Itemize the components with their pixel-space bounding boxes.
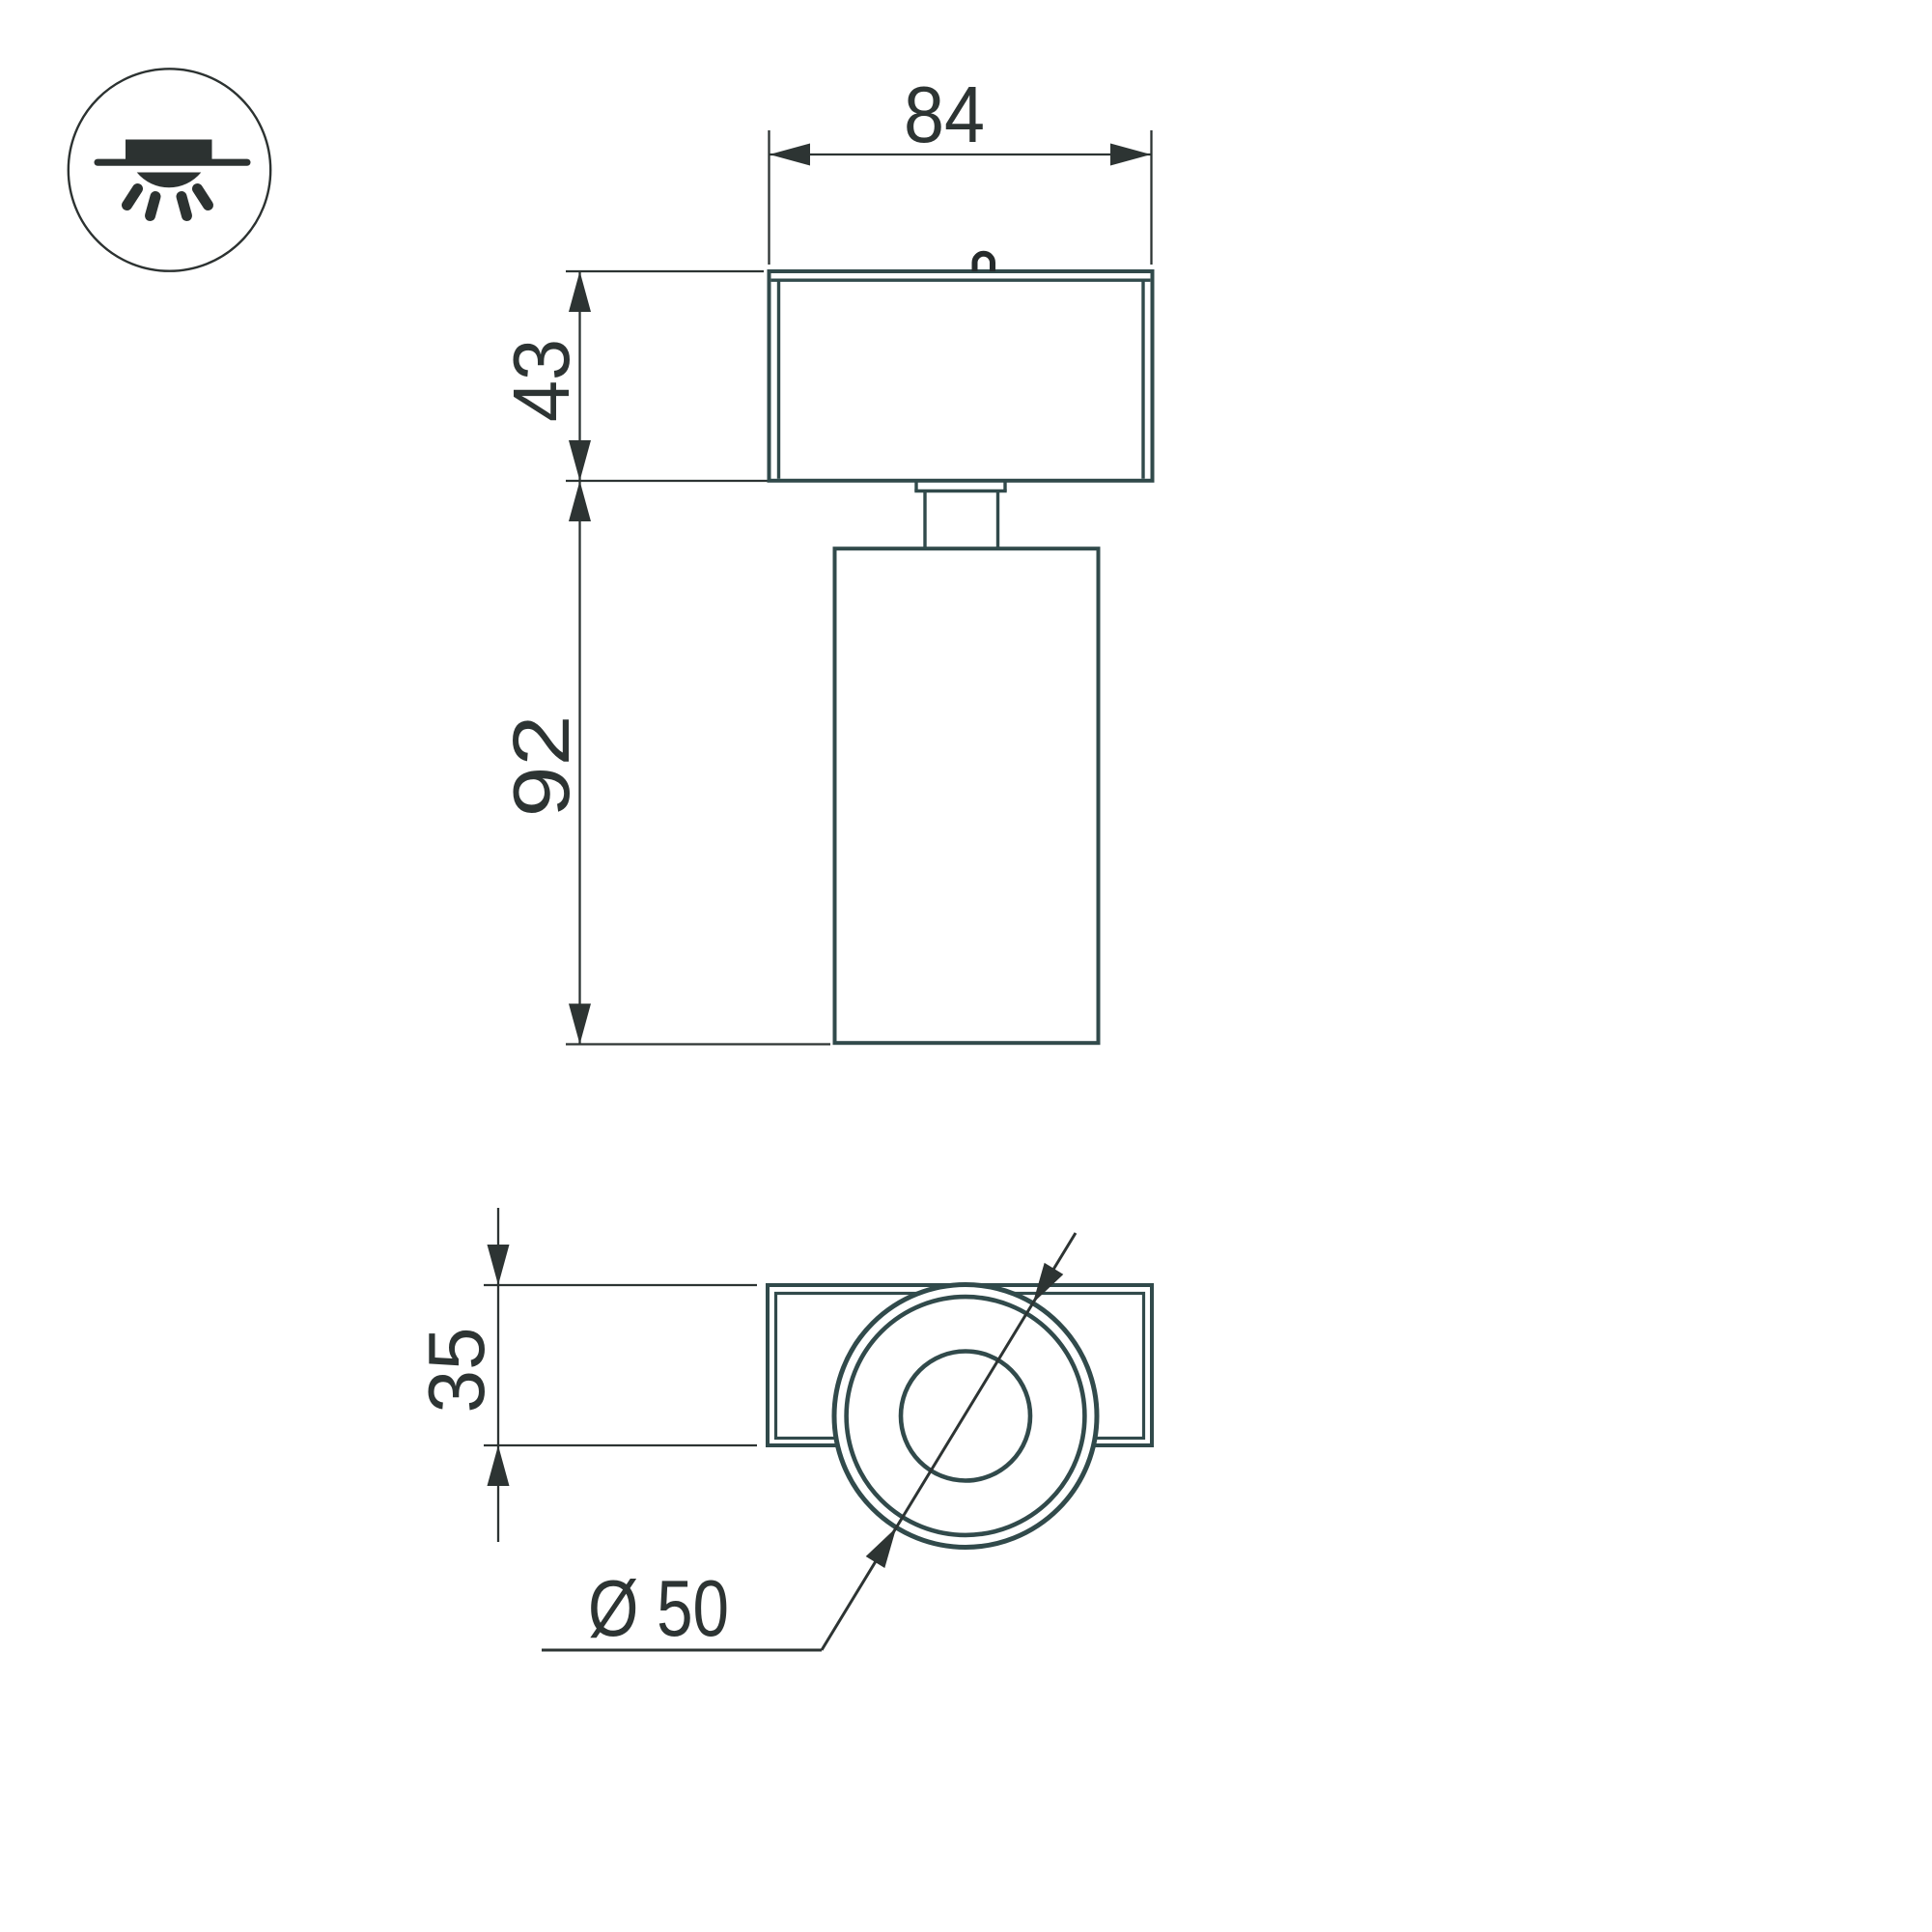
svg-text:35: 35 bbox=[411, 1328, 501, 1414]
svg-text:Ø 50: Ø 50 bbox=[588, 1563, 729, 1653]
svg-text:43: 43 bbox=[496, 339, 586, 422]
svg-text:84: 84 bbox=[904, 70, 985, 159]
svg-text:92: 92 bbox=[496, 715, 586, 818]
